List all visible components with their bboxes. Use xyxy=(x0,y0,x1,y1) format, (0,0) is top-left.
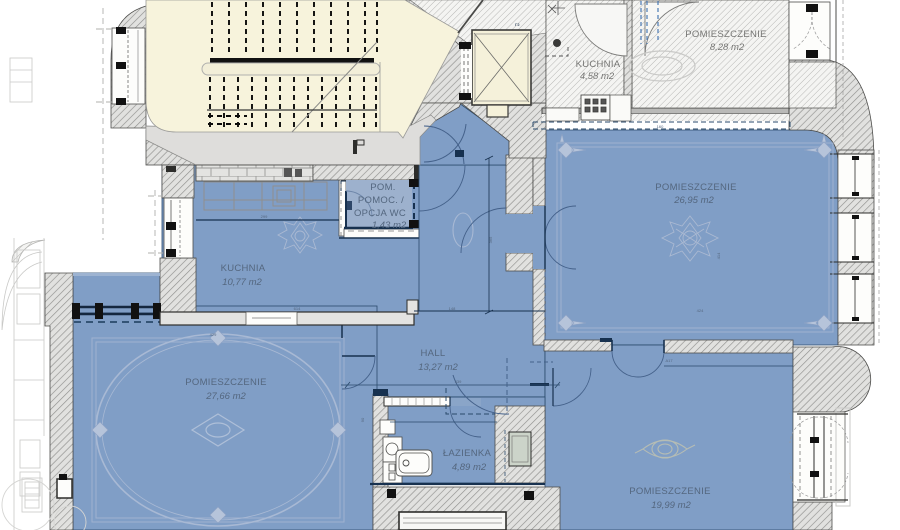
svg-text:90: 90 xyxy=(360,417,365,422)
svg-text:POMIESZCZENIE: POMIESZCZENIE xyxy=(655,182,737,193)
svg-text:429: 429 xyxy=(210,332,217,337)
svg-text:27,66 m2: 27,66 m2 xyxy=(205,391,246,402)
svg-text:POMIESZCZENIE: POMIESZCZENIE xyxy=(629,486,711,497)
svg-text:KUCHNIA: KUCHNIA xyxy=(576,59,621,70)
svg-text:ŁAZIENKA: ŁAZIENKA xyxy=(443,448,492,459)
svg-text:10,77 m2: 10,77 m2 xyxy=(222,277,262,288)
svg-text:A17: A17 xyxy=(665,358,673,363)
svg-text:4,89 m2: 4,89 m2 xyxy=(452,462,487,473)
svg-text:614: 614 xyxy=(294,306,301,311)
svg-text:424: 424 xyxy=(697,308,704,313)
svg-text:POMOC. /: POMOC. / xyxy=(358,195,404,206)
svg-text:POMIESZCZENIE: POMIESZCZENIE xyxy=(685,29,767,40)
svg-text:148: 148 xyxy=(449,306,456,311)
svg-text:26,95 m2: 26,95 m2 xyxy=(673,195,714,206)
svg-text:365: 365 xyxy=(488,236,493,243)
svg-text:4,58 m2: 4,58 m2 xyxy=(580,71,615,82)
svg-text:Γ2: Γ2 xyxy=(515,22,520,27)
svg-text:POMIESZCZENIE: POMIESZCZENIE xyxy=(185,377,267,388)
svg-text:19,99 m2: 19,99 m2 xyxy=(651,500,691,511)
svg-text:POM.: POM. xyxy=(370,182,395,193)
svg-text:414: 414 xyxy=(716,252,721,259)
svg-text:KUCHNIA: KUCHNIA xyxy=(221,263,266,274)
svg-text:OPCJA WC: OPCJA WC xyxy=(354,208,406,219)
svg-text:HALL: HALL xyxy=(421,348,446,359)
svg-text:8,28 m2: 8,28 m2 xyxy=(710,42,745,53)
svg-text:299: 299 xyxy=(261,214,268,219)
svg-text:1,43 m2: 1,43 m2 xyxy=(372,220,407,231)
svg-text:339: 339 xyxy=(455,379,462,384)
svg-text:160: 160 xyxy=(657,124,664,129)
svg-text:13,27 m2: 13,27 m2 xyxy=(418,362,458,373)
